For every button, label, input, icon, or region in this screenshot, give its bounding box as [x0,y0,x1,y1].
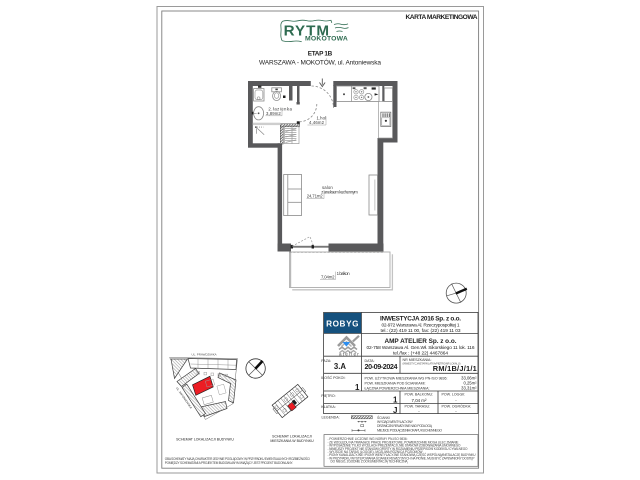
svg-text:POW. LOGGII:: POW. LOGGII: [442,393,466,397]
svg-text:SCHEMAT LOKALIZACJI: SCHEMAT LOKALIZACJI [272,434,312,438]
svg-text:WARSZAWA - MOKOTÓW, ul. Antoni: WARSZAWA - MOKOTÓW, ul. Antoniewska [259,58,381,67]
svg-text:ŁĄCZNA POWIERZCHNIA MIESZKANIA: ŁĄCZNA POWIERZCHNIA MIESZKANIA: [365,387,430,391]
svg-text:tel.: (22) 419 11 00, fax: (22: tel.: (22) 419 11 00, fax: (22) 419 11 0… [381,328,461,334]
svg-text:NR MIESZKANIA:: NR MIESZKANIA: [403,358,432,362]
svg-text:3,89m2: 3,89m2 [266,111,281,116]
svg-text:4,46m2: 4,46m2 [309,120,325,125]
svg-text:3.A: 3.A [334,362,347,371]
svg-text:02-758 Warszawa Al. Gen.Wł. S: 02-758 Warszawa Al. Gen.Wł. Sikorskiego … [367,345,475,351]
svg-text:INWESTYCJA 2016 Sp. z o.o.: INWESTYCJA 2016 Sp. z o.o. [380,316,461,323]
svg-text:J: J [393,406,397,415]
svg-text:RM/1B/J/1/1: RM/1B/J/1/1 [433,364,477,373]
svg-text:ETAP 1B: ETAP 1B [308,50,333,57]
svg-text:POMIĘDZY SCHEMATAMI A PROJEKTE: POMIĘDZY SCHEMATAMI A PROJEKTEM BUDOWLAN… [165,460,294,465]
svg-text:POW. UŻYTKOWA MIESZKANIA WG PN: POW. UŻYTKOWA MIESZKANIA WG PN-ISO 9836: [365,376,448,381]
svg-text:7,04 m²: 7,04 m² [412,398,427,403]
svg-text:MIESZKANIA W BUDYNKU: MIESZKANIA W BUDYNKU [270,439,314,443]
svg-text:POW. BALKONU:: POW. BALKONU: [405,393,434,397]
svg-text:tel./fax : (+48 22) 4467864: tel./fax : (+48 22) 4467864 [393,350,448,356]
svg-text:atelier: atelier [339,352,360,357]
svg-text:DO NIEGO, ZGODNIE Z DOKUMENTAC: DO NIEGO, ZGODNIE Z DOKUMENTACJĄ TECHNIC… [331,460,409,464]
svg-text:POW. MIESZKANIA POD ŚCIANKAMI:: POW. MIESZKANIA POD ŚCIANKAMI: [365,381,426,386]
svg-text:KARTA MARKETINGOWA: KARTA MARKETINGOWA [406,14,478,21]
svg-text:ROBYG: ROBYG [326,320,359,329]
svg-text:FAZA:: FAZA: [321,359,331,363]
svg-text:ILOŚĆ POKOI:: ILOŚĆ POKOI: [321,375,345,380]
svg-text:AMP ATELIER Sp. z o.o.: AMP ATELIER Sp. z o.o. [385,338,457,345]
svg-text:02-972 Warszawa Al. Rzeczyposp: 02-972 Warszawa Al. Rzeczypospolitej 1 [382,323,460,329]
svg-text:7,04m2: 7,04m2 [321,275,335,280]
svg-text:LEGENDA:: LEGENDA: [322,416,340,420]
svg-text:PIĘTRO:: PIĘTRO: [321,394,335,398]
svg-text:20-09-2024: 20-09-2024 [365,362,398,371]
svg-text:UL. PRAWDZIWKA: UL. PRAWDZIWKA [192,352,217,356]
svg-text:24,71m2: 24,71m2 [307,194,324,199]
svg-text:1: 1 [393,396,398,405]
svg-text:1 balkon: 1 balkon [337,271,351,276]
svg-text:MIEJSCE PODŁĄCZENIA OKAPU KUCH: MIEJSCE PODŁĄCZENIA OKAPU KUCHENNEGO [377,428,442,432]
svg-text:1: 1 [355,383,360,392]
svg-text:KLATKA:: KLATKA: [321,405,336,409]
svg-text:33,31m²: 33,31m² [461,386,477,391]
svg-text:MOKOTOWA: MOKOTOWA [305,36,348,43]
svg-text:SCHEMAT LOKALIZACJI BUDYNKU: SCHEMAT LOKALIZACJI BUDYNKU [176,438,234,442]
svg-text:z aneksem kuchennym: z aneksem kuchennym [321,189,358,194]
